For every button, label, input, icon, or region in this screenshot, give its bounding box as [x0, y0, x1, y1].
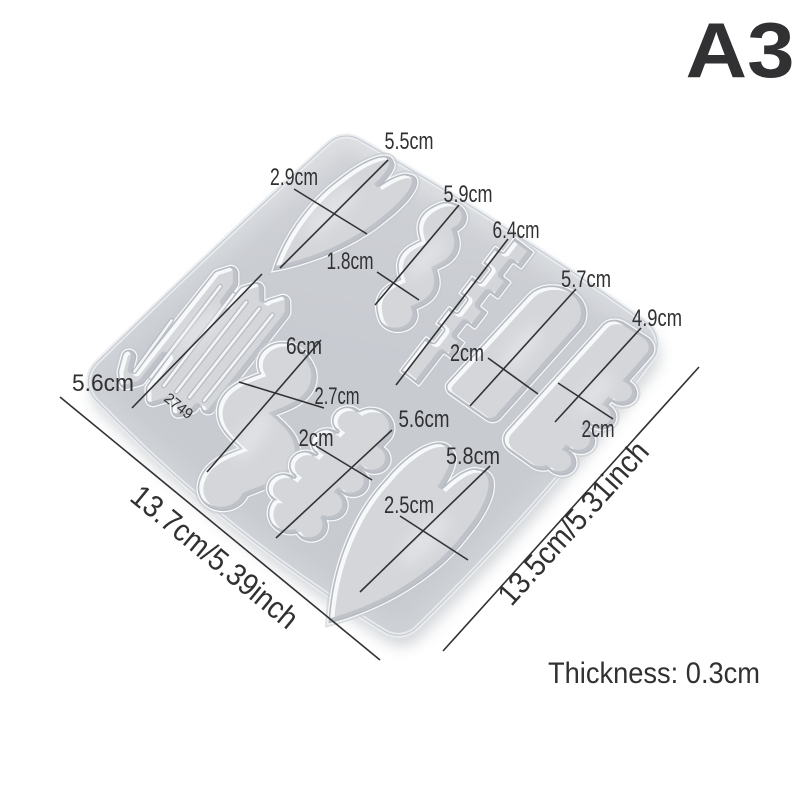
svg-text:5.5cm: 5.5cm: [385, 128, 434, 155]
svg-text:A3: A3: [686, 6, 795, 94]
svg-text:2cm: 2cm: [582, 416, 615, 443]
svg-text:5.6cm: 5.6cm: [399, 406, 450, 433]
svg-text:6cm: 6cm: [286, 333, 322, 360]
svg-text:5.9cm: 5.9cm: [444, 181, 493, 208]
svg-text:5.7cm: 5.7cm: [561, 266, 611, 293]
svg-text:4.9cm: 4.9cm: [632, 305, 682, 332]
svg-text:2.7cm: 2.7cm: [315, 383, 360, 410]
svg-text:Thickness: 0.3cm: Thickness: 0.3cm: [548, 657, 760, 690]
svg-text:2cm: 2cm: [299, 425, 334, 452]
svg-text:6.4cm: 6.4cm: [493, 217, 540, 244]
svg-text:5.6cm: 5.6cm: [72, 370, 134, 397]
svg-text:2cm: 2cm: [450, 340, 484, 367]
svg-text:1.8cm: 1.8cm: [327, 248, 374, 275]
svg-text:5.8cm: 5.8cm: [446, 443, 500, 470]
svg-text:2.5cm: 2.5cm: [384, 492, 434, 519]
svg-text:2.9cm: 2.9cm: [270, 164, 318, 191]
